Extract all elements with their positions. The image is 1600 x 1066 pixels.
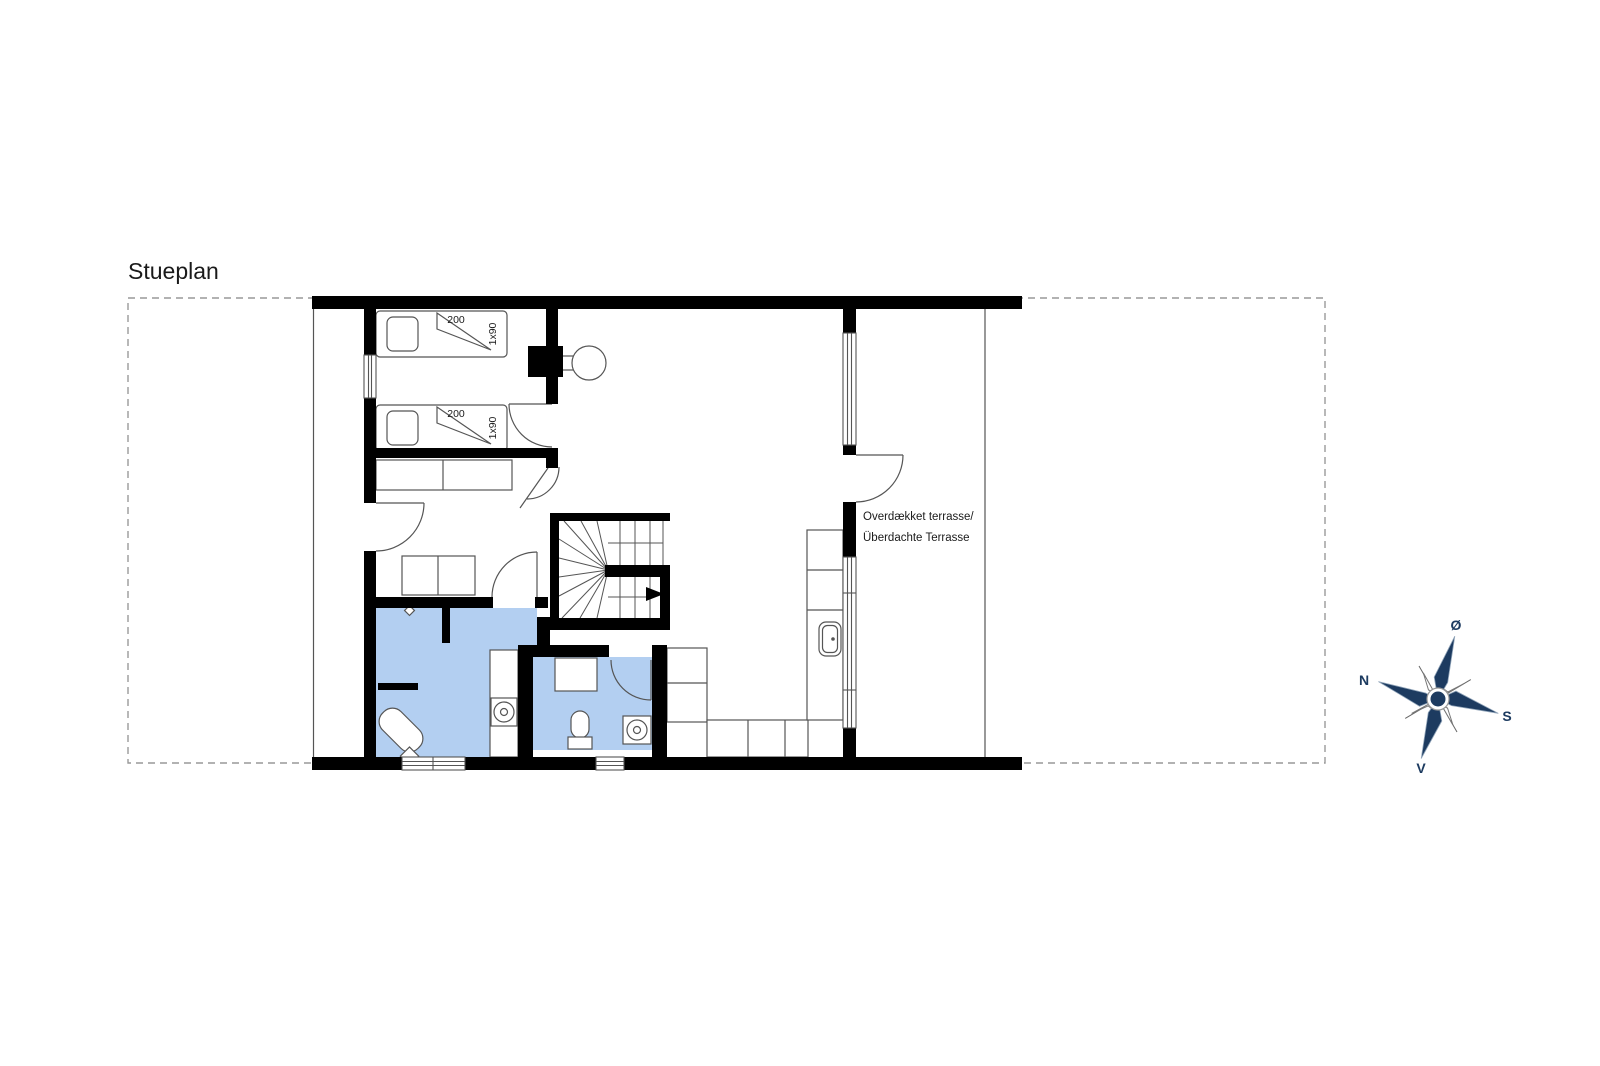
window-west-bedroom [364,355,376,398]
window-south-bathroom1 [402,757,465,770]
compass-south-label: S [1502,708,1511,724]
hall-living-opening [520,467,559,508]
terrace-label-line2: Überdachte Terrasse [863,532,970,544]
bathroom2-sink [623,716,651,744]
window-east-kitchen [843,557,856,728]
wood-stove [560,346,606,380]
hall-wardrobe-top [376,460,512,490]
wall-shower-partition [378,683,418,690]
compass-hub [1431,692,1446,707]
floor-plan-page: Stueplan 200 1x90 200 1x90 Overdækket te… [0,0,1600,1066]
entry-door [376,503,424,551]
window-south-bathroom2 [596,757,624,770]
wall-north [312,296,1022,309]
terrace-door [856,455,903,502]
wall-stairs-north [550,513,670,521]
wall-stub [546,458,558,468]
page-title: Stueplan [128,258,219,284]
terrace-label-line1: Overdækket terrasse/ [863,511,974,523]
bedroom-door [509,404,552,447]
compass-east-label: Ø [1451,617,1462,633]
bed-1-pillow [387,317,418,351]
toilet [568,711,592,749]
wall-bathroom1-partition [442,608,450,643]
hall-wardrobe-bottom [402,556,475,595]
bathroom1-sink [491,698,517,726]
wall-east [843,502,856,557]
wall-stairs-west [550,513,559,630]
wall-bedroom-south [364,448,558,458]
wall-stub [535,597,548,608]
bed-1-width-label: 1x90 [487,322,499,345]
bathroom1-door [492,552,537,597]
kitchen-sink [819,622,841,656]
bed-2-width-label: 1x90 [487,416,499,439]
wall-east [843,309,856,333]
bed-1-length-label: 200 [447,314,465,326]
wall-east [843,728,856,757]
compass-north-label: N [1359,672,1369,688]
chimney [528,346,563,377]
kitchen-counter-bottom [707,720,808,757]
bathroom1-floor-right [490,608,518,650]
bed-2-pillow [387,411,418,445]
wall-bathroom1-east [518,650,533,757]
window-east-living [843,333,856,445]
compass-west-label: V [1416,760,1426,776]
wall-stairs-south [550,618,670,630]
bathroom2-cabinet [555,658,597,691]
kitchen-counter-left [667,648,707,722]
wall-bathroom2-east [652,645,667,757]
wall-bathroom1-north [364,597,493,608]
bed-2-length-label: 200 [447,408,465,420]
wall-west [364,551,376,757]
wall-east [843,445,856,455]
wall-bathroom2-north [518,645,609,657]
compass-rose: Ø N S V [1359,617,1512,776]
wall-stairs-east [660,565,670,630]
floor-plan-drawing: Stueplan 200 1x90 200 1x90 Overdækket te… [0,0,1600,1066]
site-boundary-dashed [128,298,1325,763]
wall-stub [537,617,550,645]
wall-west [364,309,376,355]
kitchen-counters [667,530,843,757]
